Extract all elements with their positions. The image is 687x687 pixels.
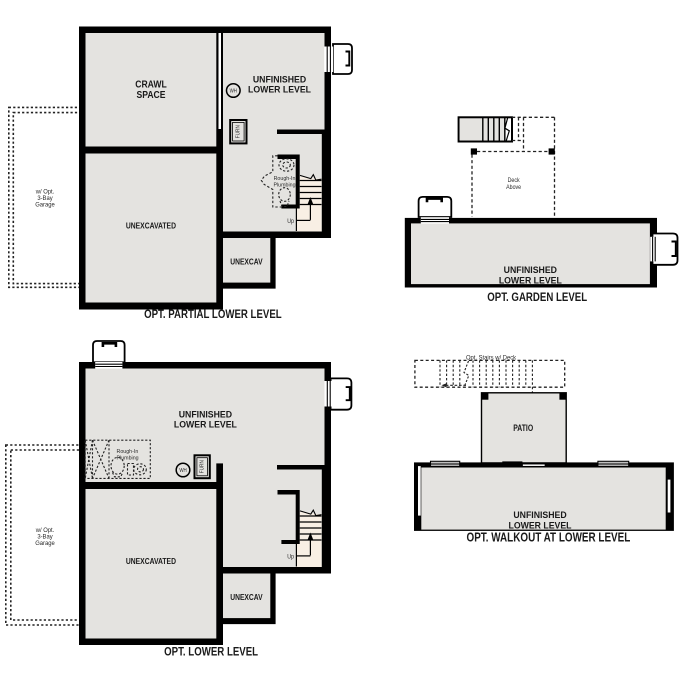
svg-text:UNEXCAVATED: UNEXCAVATED [126, 557, 177, 567]
svg-text:3-Bay: 3-Bay [37, 534, 52, 540]
svg-text:WH: WH [230, 88, 238, 94]
svg-text:OPT. PARTIAL LOWER LEVEL: OPT. PARTIAL LOWER LEVEL [144, 308, 282, 321]
svg-text:LOWER LEVEL: LOWER LEVEL [499, 275, 562, 285]
svg-text:CRAWL: CRAWL [135, 79, 167, 90]
svg-text:Up: Up [287, 554, 294, 560]
svg-text:UNFINISHED: UNFINISHED [253, 74, 307, 84]
svg-text:Garage: Garage [35, 541, 55, 547]
svg-text:FURN: FURN [235, 125, 241, 138]
svg-text:UNFINISHED: UNFINISHED [513, 510, 567, 520]
svg-text:PATIO: PATIO [513, 423, 533, 433]
svg-text:Plumbing: Plumbing [273, 182, 295, 188]
svg-text:LOWER LEVEL: LOWER LEVEL [509, 520, 572, 530]
svg-text:OPT. WALKOUT AT LOWER LEVEL: OPT. WALKOUT AT LOWER LEVEL [467, 532, 631, 545]
svg-text:FURN: FURN [199, 460, 205, 473]
svg-text:Garage: Garage [35, 202, 55, 208]
svg-text:Above: Above [506, 184, 521, 190]
svg-text:UNEXCAVATED: UNEXCAVATED [126, 221, 177, 231]
svg-text:OPT. LOWER LEVEL: OPT. LOWER LEVEL [164, 645, 258, 658]
svg-text:Up: Up [287, 218, 294, 224]
svg-text:Deck: Deck [508, 178, 520, 184]
svg-text:LOWER LEVEL: LOWER LEVEL [174, 419, 237, 429]
svg-text:UNFINISHED: UNFINISHED [179, 409, 233, 419]
svg-text:Rough-In: Rough-In [274, 176, 296, 182]
svg-text:UNFINISHED: UNFINISHED [504, 265, 558, 275]
svg-text:UNEXCAV: UNEXCAV [230, 257, 262, 267]
svg-text:SPACE: SPACE [136, 90, 165, 101]
svg-text:3-Bay: 3-Bay [37, 196, 52, 202]
svg-text:WH: WH [179, 468, 187, 474]
svg-text:w/ Opt.: w/ Opt. [35, 528, 55, 534]
svg-text:LOWER LEVEL: LOWER LEVEL [248, 84, 311, 94]
svg-text:w/ Opt.: w/ Opt. [35, 190, 55, 196]
svg-text:Plumbing: Plumbing [117, 455, 139, 461]
svg-text:OPT. GARDEN LEVEL: OPT. GARDEN LEVEL [487, 291, 587, 304]
svg-text:UNEXCAV: UNEXCAV [230, 592, 262, 602]
svg-text:Rough-In: Rough-In [117, 449, 139, 455]
